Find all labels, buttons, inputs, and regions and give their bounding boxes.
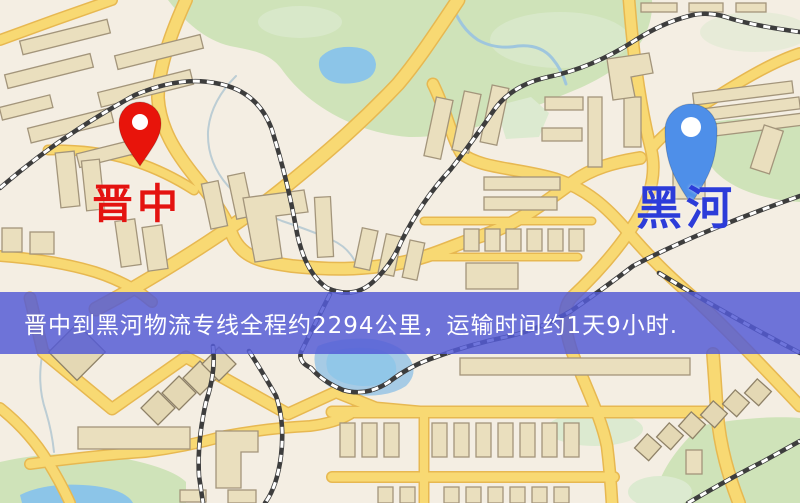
map-screenshot: 晋中 黑河 晋中到黑河物流专线全程约2294公里，运输时间约1天9小时. bbox=[0, 0, 800, 503]
origin-label: 晋中 bbox=[92, 170, 182, 230]
origin-pin-hole bbox=[132, 114, 148, 130]
lake-top bbox=[319, 47, 376, 84]
route-info-banner: 晋中到黑河物流专线全程约2294公里，运输时间约1天9小时. bbox=[0, 292, 800, 354]
route-info-text: 晋中到黑河物流专线全程约2294公里，运输时间约1天9小时. bbox=[24, 306, 678, 340]
destination-label: 黑河 bbox=[636, 172, 736, 238]
destination-pin-hole bbox=[681, 117, 701, 137]
map-canvas[interactable] bbox=[0, 0, 800, 503]
